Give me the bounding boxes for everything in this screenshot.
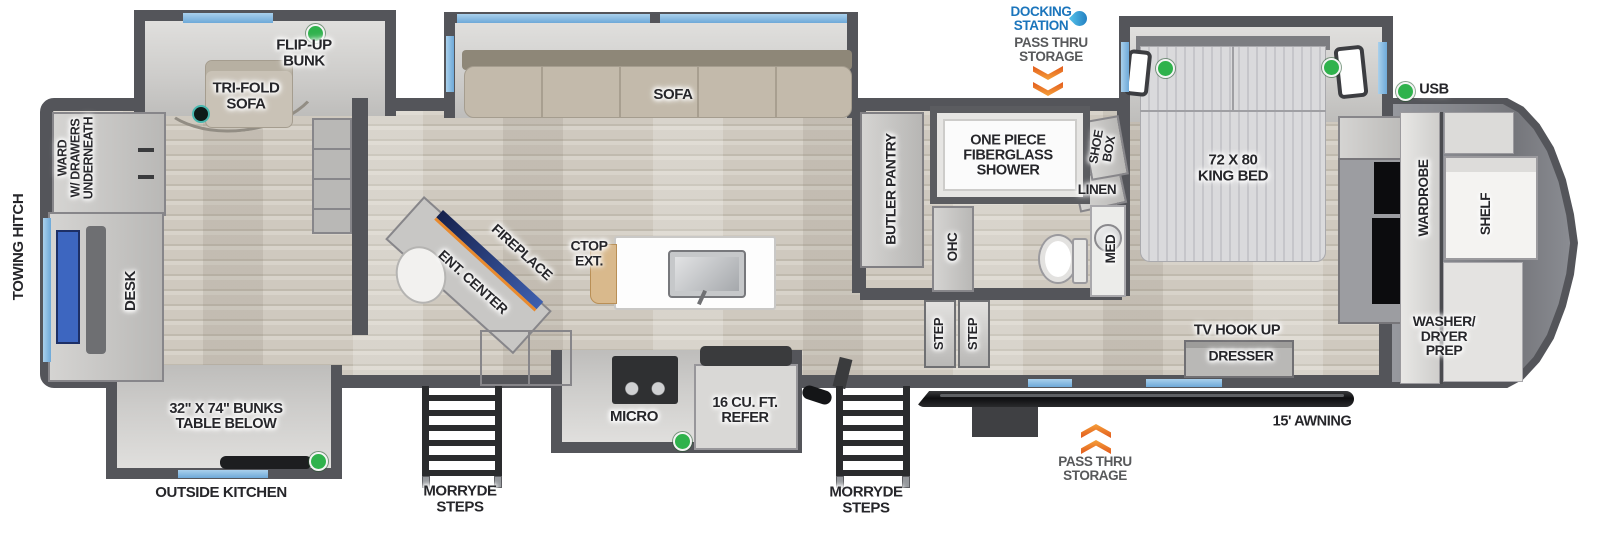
window bbox=[446, 36, 454, 92]
outside-kitchen-label: OUTSIDE KITCHEN bbox=[155, 485, 287, 501]
med-label: MED bbox=[1104, 235, 1118, 264]
refer-label: 16 CU. FT. REFER bbox=[712, 396, 777, 426]
pass-thru-up-arrow-icon bbox=[1081, 424, 1111, 454]
usb-label: USB bbox=[1419, 82, 1448, 97]
window bbox=[43, 218, 51, 362]
awning-label: 15' AWNING bbox=[1273, 414, 1352, 429]
status-dot bbox=[309, 452, 328, 471]
micro-label: MICRO bbox=[610, 409, 658, 425]
pass-thru-bottom-label: PASS THRU STORAGE bbox=[1058, 455, 1131, 483]
wardrobe-drawers-label: WARD W/ DRAWERS UNDERNEATH bbox=[57, 117, 96, 200]
window bbox=[178, 470, 268, 478]
window bbox=[1146, 379, 1222, 387]
range-cooktop bbox=[612, 356, 678, 404]
tri-fold-sofa-label: TRI-FOLD SOFA bbox=[213, 80, 280, 111]
awning-rail bbox=[916, 391, 1354, 407]
toilet-tank bbox=[1072, 238, 1088, 284]
outside-kitchen-griddle bbox=[220, 456, 312, 469]
base-cabinet bbox=[480, 330, 572, 386]
towing-hitch-label: TOWING HITCH bbox=[11, 194, 27, 301]
morryde-steps-right-label: MORRYDE STEPS bbox=[829, 484, 902, 515]
front-upper-cabinet bbox=[1444, 112, 1514, 154]
docking-water-drop-icon bbox=[1069, 8, 1090, 29]
morryde-steps-left-label: MORRYDE STEPS bbox=[423, 483, 496, 514]
status-dot bbox=[673, 432, 692, 451]
ohc-label: OHC bbox=[946, 233, 960, 262]
refrigerator-top bbox=[700, 346, 792, 366]
desk-monitor bbox=[56, 230, 80, 344]
drawer-handle bbox=[138, 175, 154, 179]
bunkroom-wall bbox=[352, 98, 368, 335]
window bbox=[1121, 42, 1129, 92]
window bbox=[457, 14, 650, 23]
bath-hall-wall bbox=[860, 288, 1122, 300]
morryde-steps-right bbox=[836, 386, 910, 478]
docking-station-label: DOCKING STATION bbox=[1011, 5, 1072, 33]
pillow-center-seam bbox=[1232, 46, 1234, 110]
king-bed-label: 72 X 80 KING BED bbox=[1198, 152, 1268, 183]
pass-thru-top-label: PASS THRU STORAGE bbox=[1014, 36, 1087, 64]
shelf-label: SHELF bbox=[1479, 193, 1493, 235]
bunks-table-label: 32" X 74" BUNKS TABLE BELOW bbox=[169, 402, 282, 432]
ctop-ext-label: CTOP EXT. bbox=[570, 238, 607, 267]
window bbox=[1378, 42, 1387, 94]
status-dot bbox=[1156, 59, 1175, 78]
tv-hook-up-label: TV HOOK UP bbox=[1194, 323, 1280, 338]
sofa-label: SOFA bbox=[653, 87, 692, 103]
window bbox=[1028, 379, 1072, 387]
speaker-dot bbox=[192, 105, 210, 123]
shower-label: ONE PIECE FIBERGLASS SHOWER bbox=[963, 133, 1052, 178]
butler-pantry-label: BUTLER PANTRY bbox=[884, 133, 899, 244]
wardrobe-label: WARDROBE bbox=[1417, 159, 1431, 236]
desk-label: DESK bbox=[123, 271, 139, 311]
usb-status-dot bbox=[1396, 82, 1415, 101]
status-dot bbox=[1322, 58, 1341, 77]
step-label: STEP bbox=[966, 318, 980, 350]
linen-label: LINEN bbox=[1078, 183, 1117, 197]
drawer-handle bbox=[138, 148, 154, 152]
shelf-cabinet bbox=[312, 118, 352, 234]
flip-up-bunk-label: FLIP-UP BUNK bbox=[276, 37, 332, 68]
rv-floorplan-diagram: TOWING HITCH WARD W/ DRAWERS UNDERNEATH … bbox=[0, 0, 1600, 538]
desk-chair bbox=[86, 226, 106, 354]
window bbox=[183, 13, 273, 23]
dresser-label: DRESSER bbox=[1209, 349, 1274, 364]
washer-dryer-label: WASHER/ DRYER PREP bbox=[1413, 314, 1476, 358]
pillow-divider bbox=[1140, 110, 1326, 112]
morryde-steps-left bbox=[422, 386, 502, 478]
step-label: STEP bbox=[932, 318, 946, 350]
pass-thru-down-arrow-icon bbox=[1033, 66, 1063, 96]
window bbox=[660, 14, 847, 23]
